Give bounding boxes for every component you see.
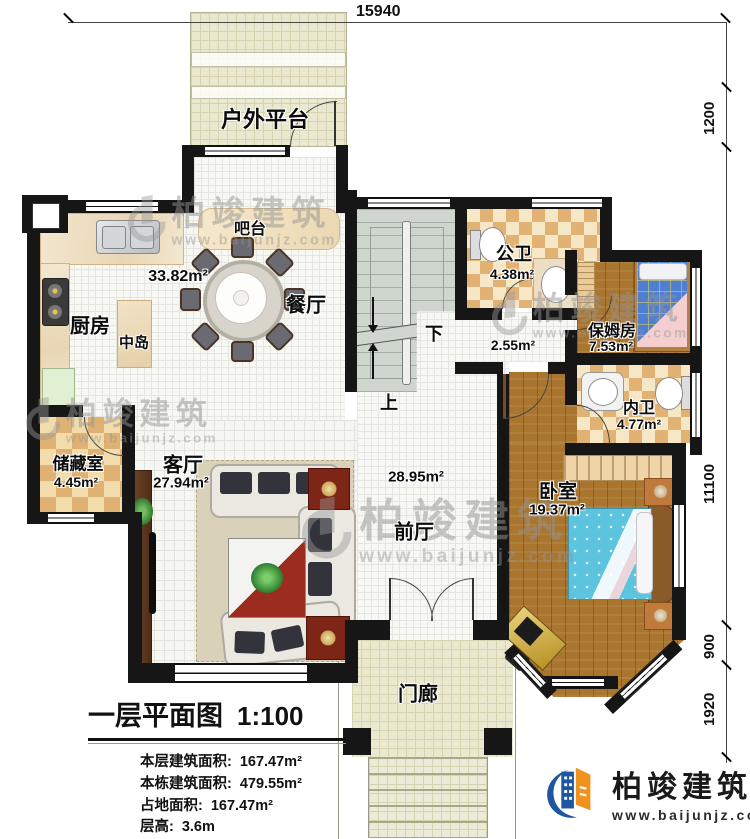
stairs-up-label: 上 <box>380 389 398 415</box>
room-label-bedroom: 卧室 <box>539 477 577 504</box>
side-table <box>308 468 350 510</box>
room-label-public-bath: 公卫 <box>496 240 532 266</box>
plan-scale: 1:100 <box>237 701 304 732</box>
wall <box>455 308 502 320</box>
company-logo-icon <box>540 760 602 824</box>
wall <box>27 195 40 524</box>
bedroom-window <box>672 505 686 587</box>
room-label-platform: 户外平台 <box>221 102 309 134</box>
wall <box>307 663 358 683</box>
floor-plan: 柏竣建筑 www.baijunjz.com 柏竣建筑 www.baijunjz.… <box>0 0 750 839</box>
wall <box>548 362 577 374</box>
wall <box>565 443 686 455</box>
wall <box>532 308 577 320</box>
bed-pillow <box>636 512 653 594</box>
bedroom-door-leaf <box>503 374 506 418</box>
platform-door-leaf <box>334 101 336 146</box>
room-label-kitchen: 厨房 <box>70 310 110 339</box>
room-area-public-bath: 4.38m² <box>490 266 534 282</box>
stair-arrow-down <box>372 297 374 325</box>
room-area-storage: 4.45m² <box>54 474 98 490</box>
company-logo: 柏竣建筑 www.baijunjz.com <box>540 760 750 824</box>
dimension-right-1: 1200 <box>701 94 718 142</box>
stat-value: 167.47m² <box>240 752 302 774</box>
room-label-porch: 门廊 <box>398 678 438 707</box>
stair-arrow-up <box>372 351 374 379</box>
nanny-bed <box>634 258 692 352</box>
public-bath-window <box>532 197 602 209</box>
title-underline <box>88 738 346 741</box>
dimension-top-value: 15940 <box>356 3 401 21</box>
stat-label: 本层建筑面积: <box>140 752 232 774</box>
stat-row: 层高:3.6m <box>140 817 358 839</box>
stat-label: 本栋建筑面积: <box>140 774 232 796</box>
company-logo-brand: 柏竣建筑 <box>612 762 750 806</box>
dining-chair <box>231 341 254 362</box>
living-window <box>175 663 307 683</box>
dining-area-value: 33.82m² <box>148 268 208 286</box>
company-logo-url: www.baijunjz.com <box>612 807 750 823</box>
stat-row: 本栋建筑面积:479.55m² <box>140 774 358 796</box>
stat-value: 479.55m² <box>240 774 302 796</box>
dimension-line-right <box>726 22 727 763</box>
room-area-inner-bath: 4.77m² <box>617 416 661 432</box>
stair-window <box>368 197 450 209</box>
inner-bath-sink <box>581 372 624 411</box>
fridge <box>42 368 75 407</box>
stair-arrow-up-head <box>368 343 378 351</box>
side-table <box>306 616 350 660</box>
room-area-foyer: 28.95m² <box>388 469 444 486</box>
dimension-line-top <box>68 22 726 23</box>
platform-band <box>191 52 346 67</box>
room-label-island: 中岛 <box>119 332 149 353</box>
room-label-dining: 餐厅 <box>286 289 326 318</box>
room-label-living: 客厅 <box>163 449 203 478</box>
corridor-area-value: 2.55m² <box>491 337 535 353</box>
wall <box>345 190 357 392</box>
stat-label: 层高: <box>140 817 174 839</box>
stat-value: 167.47m² <box>211 796 273 818</box>
stat-label: 占地面积: <box>140 796 203 818</box>
wall <box>455 209 467 312</box>
room-area-bedroom: 19.37m² <box>529 502 585 519</box>
inner-bath-toilet-bowl <box>655 377 683 410</box>
title-underline-thin <box>88 743 346 744</box>
title-block: 一层平面图 1:100 本层建筑面积:167.47m² 本栋建筑面积:479.5… <box>88 694 358 839</box>
stair-arrow-down-head <box>368 325 378 333</box>
dimension-right-2: 11100 <box>701 438 718 530</box>
wall <box>122 405 135 515</box>
platform-band <box>191 86 346 99</box>
room-area-nanny: 7.53m² <box>589 338 633 354</box>
inner-bath-window <box>690 373 702 437</box>
dining-table-center <box>233 290 249 306</box>
dining-chair <box>180 288 201 311</box>
room-label-storage: 储藏室 <box>53 450 104 475</box>
room-label-bar: 吧台 <box>234 215 266 239</box>
dimension-right-3: 900 <box>701 626 718 666</box>
kitchen-window <box>86 200 158 213</box>
porch-pillar <box>484 728 512 755</box>
wall <box>128 512 142 683</box>
dimension-right-4: 1920 <box>701 680 718 738</box>
room-label-inner-bath: 内卫 <box>623 394 655 418</box>
stair-rail <box>402 221 411 385</box>
nanny-window <box>690 268 702 346</box>
wall <box>565 250 577 295</box>
storage-window <box>48 512 94 524</box>
kitchen-sink <box>96 220 160 254</box>
stove <box>42 278 69 326</box>
coffee-table <box>228 538 306 618</box>
wall <box>455 362 503 374</box>
entry-door-leaf <box>472 578 474 620</box>
plan-title: 一层平面图 <box>88 694 223 733</box>
wall <box>473 620 509 640</box>
room-label-foyer: 前厅 <box>394 516 434 545</box>
wall <box>600 250 702 262</box>
bar-counter <box>198 208 340 250</box>
porch-steps <box>368 757 488 838</box>
tv <box>149 532 156 614</box>
flue-window <box>32 203 60 229</box>
stat-row: 本层建筑面积:167.47m² <box>140 752 358 774</box>
stat-value: 3.6m <box>182 817 215 839</box>
dining-chair <box>231 237 254 258</box>
stairs-down-label: 下 <box>425 320 443 346</box>
bar-window <box>205 145 285 157</box>
room-area-living: 27.94m² <box>153 475 209 492</box>
wall <box>27 405 83 417</box>
wall <box>565 353 702 365</box>
entry-door-leaf <box>389 578 391 620</box>
stat-row: 占地面积:167.47m² <box>140 796 358 818</box>
